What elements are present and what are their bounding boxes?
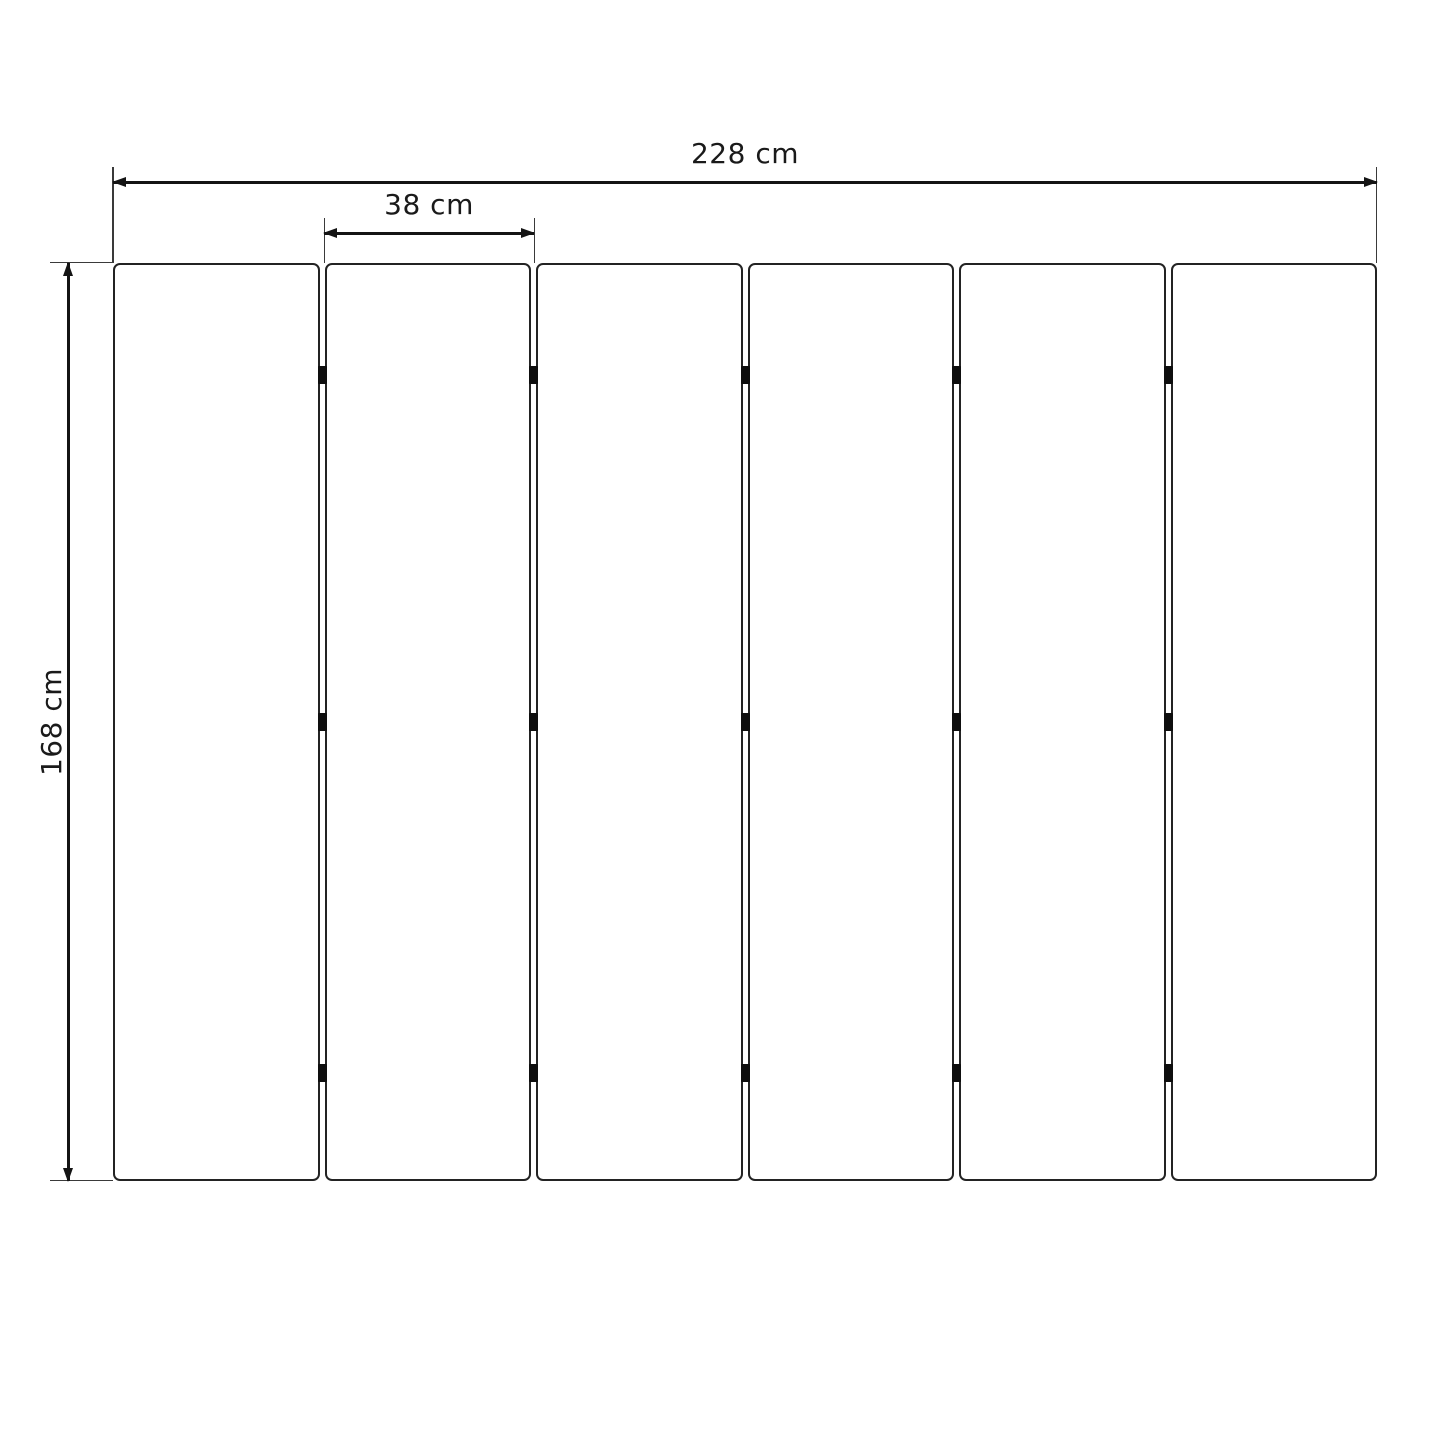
panel-6 <box>1171 263 1378 1181</box>
extension-line-panel-left <box>324 218 326 263</box>
dimension-drawing: 228 cm 38 cm 168 cm <box>0 0 1445 1445</box>
hinge-connector <box>1164 713 1173 731</box>
panel-5 <box>959 263 1166 1181</box>
hinge-connector <box>741 713 750 731</box>
arrow-down-icon <box>63 1168 73 1182</box>
hinge-connector <box>318 1064 327 1082</box>
hinge-connector <box>1164 366 1173 384</box>
hinge-connector <box>952 713 961 731</box>
extension-line-height-top <box>50 262 113 264</box>
dimension-line-total-width <box>113 181 1377 184</box>
total-width-label: 228 cm <box>113 138 1377 170</box>
hinge-connector <box>529 366 538 384</box>
hinge-connector <box>318 366 327 384</box>
hinge-connector <box>318 713 327 731</box>
arrow-right-icon <box>1364 177 1378 187</box>
arrow-left-icon <box>323 228 337 238</box>
hinge-connector <box>1164 1064 1173 1082</box>
height-label: 168 cm <box>36 668 68 776</box>
dimension-line-panel-width <box>324 232 534 235</box>
panel-width-label: 38 cm <box>324 189 534 221</box>
extension-line-panel-right <box>534 218 536 263</box>
arrow-right-icon <box>521 228 535 238</box>
hinge-connector <box>952 1064 961 1082</box>
panel-4 <box>748 263 955 1181</box>
hinge-connector <box>741 366 750 384</box>
panel-row <box>113 263 1377 1181</box>
hinge-connector <box>529 713 538 731</box>
arrow-left-icon <box>112 177 126 187</box>
extension-line-height-bottom <box>50 1180 113 1182</box>
arrow-up-icon <box>63 262 73 276</box>
panel-3 <box>536 263 743 1181</box>
hinge-connector <box>741 1064 750 1082</box>
panel-2 <box>325 263 532 1181</box>
panel-1 <box>113 263 320 1181</box>
hinge-connector <box>952 366 961 384</box>
hinge-connector <box>529 1064 538 1082</box>
